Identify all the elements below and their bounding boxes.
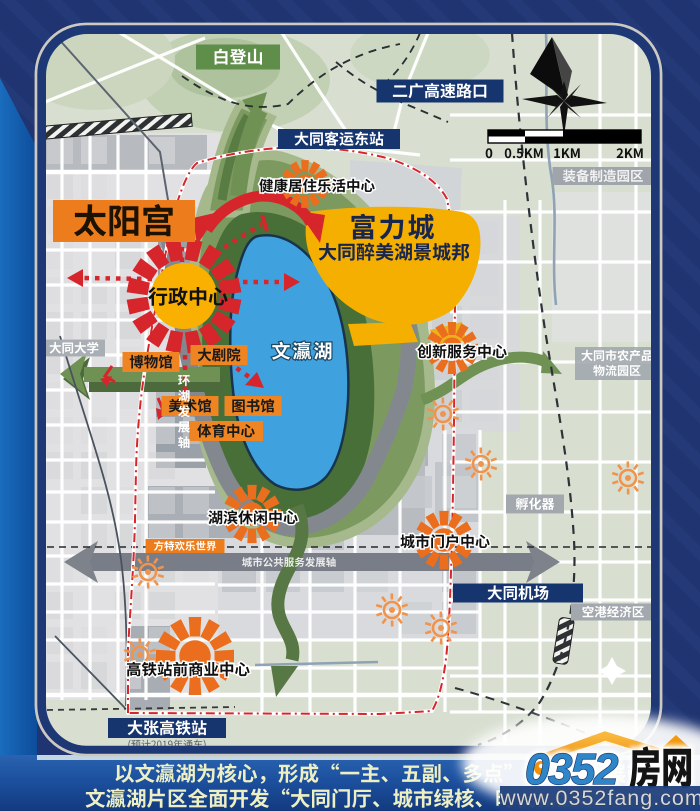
svg-text:www.0352fang.com: www.0352fang.com (499, 786, 700, 810)
